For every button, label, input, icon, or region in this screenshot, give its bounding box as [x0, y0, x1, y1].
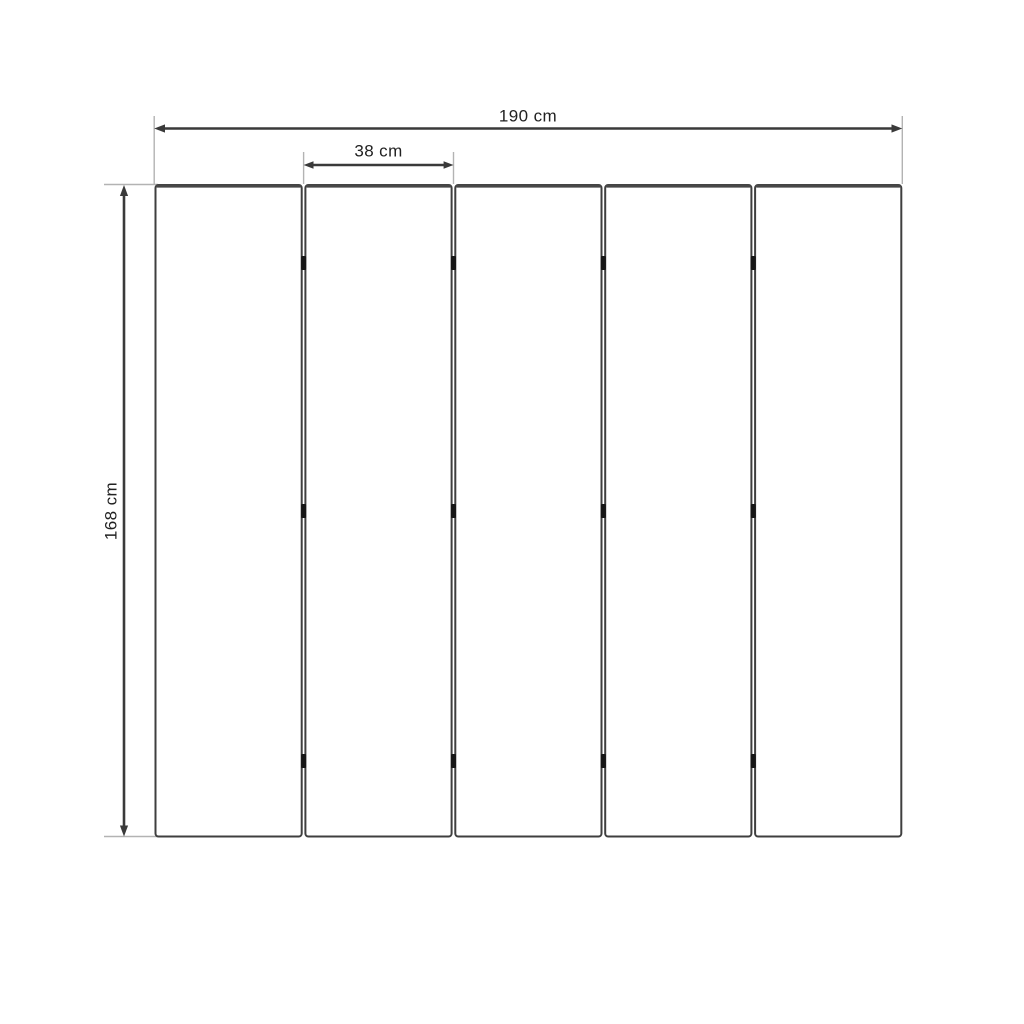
- hinge-connector: [751, 256, 756, 270]
- technical-drawing-canvas: 190 cm 38 cm 168 cm: [0, 0, 1024, 1024]
- hinge-connector: [451, 754, 456, 768]
- dimension-total-width: 190 cm: [154, 107, 902, 133]
- dimension-height: 168 cm: [102, 185, 129, 837]
- dimension-drawing: 190 cm 38 cm 168 cm: [0, 0, 1024, 1024]
- hinge-connector: [601, 256, 606, 270]
- panel-3: [455, 185, 601, 837]
- hinge-connector: [451, 504, 456, 518]
- arrow-left-icon: [304, 161, 314, 169]
- hinge-connector: [301, 504, 306, 518]
- hinge-connector: [601, 504, 606, 518]
- panel-width-label: 38 cm: [354, 142, 402, 161]
- panel-4: [605, 185, 751, 837]
- panel-5: [755, 185, 901, 837]
- arrow-right-icon: [892, 124, 903, 132]
- arrow-left-icon: [154, 124, 165, 132]
- hinge-connector: [301, 256, 306, 270]
- arrow-down-icon: [120, 826, 128, 837]
- total-width-label: 190 cm: [499, 107, 557, 126]
- dimension-panel-width: 38 cm: [304, 142, 454, 169]
- hinge-connector: [751, 504, 756, 518]
- panels: [156, 185, 902, 837]
- panel-1: [156, 185, 302, 837]
- height-label: 168 cm: [102, 482, 121, 540]
- hinge-connector: [601, 754, 606, 768]
- hinge-connector: [751, 754, 756, 768]
- arrow-right-icon: [444, 161, 454, 169]
- hinge-connector: [301, 754, 306, 768]
- hinge-connector: [451, 256, 456, 270]
- panel-2: [305, 185, 451, 837]
- arrow-up-icon: [120, 185, 128, 196]
